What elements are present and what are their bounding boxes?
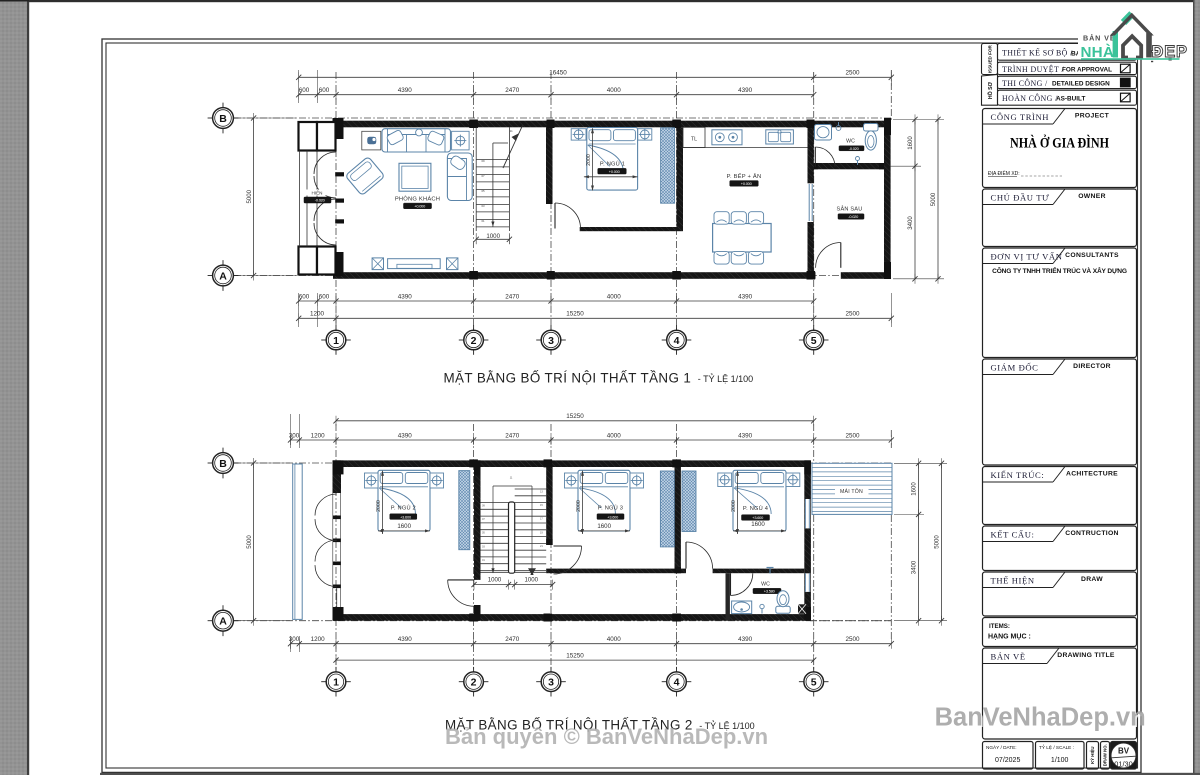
svg-text:1000: 1000: [486, 233, 500, 240]
svg-text:FOR APPROVAL: FOR APPROVAL: [1062, 66, 1112, 73]
svg-text:B: B: [219, 458, 227, 470]
svg-text:2500: 2500: [845, 432, 860, 439]
svg-text:05: 05: [482, 189, 486, 193]
svg-text:KẾT CẤU:: KẾT CẤU:: [991, 530, 1035, 540]
svg-text:KIẾN TRÚC:: KIẾN TRÚC:: [991, 470, 1045, 480]
svg-text:15250: 15250: [566, 413, 584, 420]
svg-text:5: 5: [811, 676, 817, 688]
svg-text:15250: 15250: [566, 653, 584, 660]
svg-text:1200: 1200: [311, 432, 326, 439]
svg-text:CONSULTANTS: CONSULTANTS: [1065, 252, 1119, 259]
svg-text:HOÀN CÔNG /: HOÀN CÔNG /: [1002, 93, 1058, 103]
svg-text:B: B: [219, 113, 227, 125]
svg-text:5000: 5000: [930, 192, 937, 206]
svg-text:4000: 4000: [607, 432, 622, 439]
svg-text:4390: 4390: [398, 293, 413, 300]
svg-text:+3.580: +3.580: [764, 589, 776, 594]
svg-text:1600: 1600: [397, 523, 411, 530]
svg-text:3: 3: [548, 676, 554, 688]
svg-text:03: 03: [482, 204, 486, 208]
svg-text:THI CÔNG /: THI CÔNG /: [1002, 78, 1048, 88]
svg-text:DIRECTOR: DIRECTOR: [1073, 363, 1111, 370]
svg-text:NGÀY / DATE:: NGÀY / DATE:: [986, 744, 1017, 750]
svg-text:1200: 1200: [311, 636, 326, 643]
svg-text:+0.000: +0.000: [741, 181, 753, 186]
svg-text:ACHITECTURE: ACHITECTURE: [1066, 471, 1118, 478]
svg-text:4000: 4000: [607, 87, 622, 94]
svg-text:5000: 5000: [246, 535, 253, 549]
svg-text:-0.020: -0.020: [848, 214, 859, 219]
svg-text:NHÀ Ở GIA ĐÌNH: NHÀ Ở GIA ĐÌNH: [1010, 135, 1110, 152]
svg-text:PROJECT: PROJECT: [1075, 113, 1110, 120]
svg-text:2000: 2000: [586, 154, 592, 166]
svg-text:Bản quyền © BanVeNhaDep.vn: Bản quyền © BanVeNhaDep.vn: [445, 724, 768, 749]
svg-text:HỒ SƠ: HỒ SƠ: [987, 81, 994, 99]
svg-text:2470: 2470: [505, 87, 520, 94]
svg-text:15250: 15250: [566, 311, 584, 318]
svg-text:TRÌNH DUYỆT /: TRÌNH DUYỆT /: [1002, 64, 1064, 74]
svg-text:3400: 3400: [911, 560, 918, 574]
svg-text:4390: 4390: [398, 87, 413, 94]
svg-text:DETAILED DESIGN: DETAILED DESIGN: [1052, 80, 1110, 87]
svg-text:09: 09: [482, 159, 486, 163]
svg-text:01/30: 01/30: [1114, 759, 1133, 768]
svg-text:2500: 2500: [845, 311, 860, 318]
svg-text:2500: 2500: [845, 636, 860, 643]
svg-text:OWNER: OWNER: [1078, 193, 1106, 200]
svg-text:+3.600: +3.600: [607, 514, 619, 519]
svg-text:DRAWING TITLE: DRAWING TITLE: [1057, 652, 1115, 659]
svg-text:A: A: [219, 615, 227, 627]
svg-text:1600: 1600: [751, 521, 765, 528]
svg-text:5000: 5000: [934, 535, 941, 549]
svg-text:1: 1: [333, 335, 339, 347]
svg-text:600: 600: [299, 87, 310, 94]
svg-text:CÔNG TY TNHH TRIỂN TRÚC VÀ XÂY: CÔNG TY TNHH TRIỂN TRÚC VÀ XÂY DỰNG: [992, 266, 1127, 275]
svg-text:5000: 5000: [246, 189, 253, 203]
svg-text:BanVeNhaDep.vn: BanVeNhaDep.vn: [935, 704, 1146, 732]
svg-text:5: 5: [811, 335, 817, 347]
svg-text:1000: 1000: [525, 577, 539, 584]
svg-text:+3.600: +3.600: [752, 515, 764, 520]
svg-text:CONTRUCTION: CONTRUCTION: [1065, 530, 1119, 537]
svg-text:4390: 4390: [398, 636, 413, 643]
svg-text:07/2025: 07/2025: [995, 757, 1020, 764]
svg-text:4: 4: [674, 676, 680, 688]
svg-text:THỂ HIỆN: THỂ HIỆN: [991, 576, 1035, 586]
svg-text:600: 600: [319, 293, 330, 300]
svg-text:4000: 4000: [607, 293, 622, 300]
svg-text:WC: WC: [761, 582, 770, 588]
svg-text:1: 1: [333, 676, 339, 688]
svg-text:2470: 2470: [505, 293, 520, 300]
svg-text:4390: 4390: [738, 432, 753, 439]
svg-text:4390: 4390: [398, 432, 413, 439]
svg-text:07: 07: [482, 174, 486, 178]
svg-text:A: A: [219, 270, 227, 282]
svg-text:SÂN SAU: SÂN SAU: [837, 206, 863, 213]
svg-text:1600: 1600: [907, 136, 914, 150]
svg-text:1600: 1600: [911, 482, 918, 496]
svg-text:1000: 1000: [488, 577, 502, 584]
svg-text:+3.600: +3.600: [400, 514, 412, 519]
svg-text:GIÁM ĐỐC: GIÁM ĐỐC: [991, 363, 1039, 373]
svg-text:P. NGỦ 2: P. NGỦ 2: [391, 504, 416, 511]
svg-text:HẠNG MỤC :: HẠNG MỤC :: [988, 634, 1031, 641]
svg-text:4000: 4000: [607, 636, 622, 643]
svg-text:2470: 2470: [505, 432, 520, 439]
svg-text:P. NGỦ 4: P. NGỦ 4: [743, 505, 768, 512]
svg-text:BV: BV: [1118, 746, 1130, 755]
svg-text:3: 3: [548, 335, 554, 347]
svg-text:BẢN VẼ: BẢN VẼ: [991, 652, 1026, 662]
svg-text:HIÊN: HIÊN: [312, 189, 323, 196]
svg-text:+0.000: +0.000: [609, 169, 621, 174]
svg-text:600: 600: [299, 293, 310, 300]
svg-text:16450: 16450: [549, 70, 567, 77]
svg-text:ISSUED FOR: ISSUED FOR: [988, 44, 993, 73]
svg-text:01: 01: [482, 219, 486, 223]
svg-text:2470: 2470: [505, 636, 520, 643]
svg-text:1600: 1600: [597, 523, 611, 530]
svg-text:CÔNG TRÌNH: CÔNG TRÌNH: [991, 112, 1050, 122]
svg-text:2000: 2000: [731, 500, 737, 512]
svg-text:2000: 2000: [376, 500, 382, 512]
svg-text:3400: 3400: [907, 216, 914, 230]
svg-text:1/100: 1/100: [1051, 757, 1069, 764]
svg-text:AS-BUILT: AS-BUILT: [1056, 95, 1085, 102]
svg-text:P. NGỦ 1: P. NGỦ 1: [600, 161, 625, 168]
svg-text:-0.020: -0.020: [315, 198, 326, 203]
svg-text:11: 11: [510, 129, 513, 133]
svg-text:ĐƠN VỊ TƯ VẤN: ĐƠN VỊ TƯ VẤN: [991, 252, 1063, 262]
svg-text:-0.020: -0.020: [849, 146, 860, 151]
svg-text:MÁI TÔN: MÁI TÔN: [840, 488, 863, 495]
svg-text:P. NGỦ 3: P. NGỦ 3: [598, 504, 623, 511]
svg-text:+0.000: +0.000: [414, 204, 426, 209]
svg-text:PHÒNG KHÁCH: PHÒNG KHÁCH: [395, 195, 440, 202]
svg-text:ITEMS:: ITEMS:: [989, 623, 1010, 630]
svg-text:4: 4: [674, 335, 680, 347]
svg-text:4390: 4390: [738, 293, 753, 300]
svg-text:DRAW: DRAW: [1081, 576, 1103, 583]
svg-text:TỶ LỆ / SCALE :: TỶ LỆ / SCALE :: [1039, 743, 1074, 750]
svg-text:4390: 4390: [738, 636, 753, 643]
svg-text:ĐỊA ĐIỂM XD:: ĐỊA ĐIỂM XD:: [988, 170, 1020, 177]
svg-text:DRAW NO.: DRAW NO.: [1103, 744, 1108, 766]
svg-text:2000: 2000: [576, 500, 582, 512]
svg-text:P. BẾP + ĂN: P. BẾP + ĂN: [727, 173, 762, 180]
svg-text:CHỦ ĐẦU TƯ: CHỦ ĐẦU TƯ: [991, 193, 1050, 203]
svg-text:2500: 2500: [845, 70, 860, 77]
svg-text:TL: TL: [691, 137, 697, 143]
svg-text:2: 2: [471, 676, 477, 688]
svg-text:2: 2: [471, 335, 477, 347]
svg-text:KÝ HIỆU: KÝ HIỆU: [1090, 746, 1095, 763]
svg-text:THIẾT KẾ SƠ BỘ /: THIẾT KẾ SƠ BỘ /: [1002, 48, 1073, 58]
svg-text:600: 600: [319, 87, 330, 94]
svg-text:4390: 4390: [738, 87, 753, 94]
svg-text:WC: WC: [846, 138, 855, 144]
